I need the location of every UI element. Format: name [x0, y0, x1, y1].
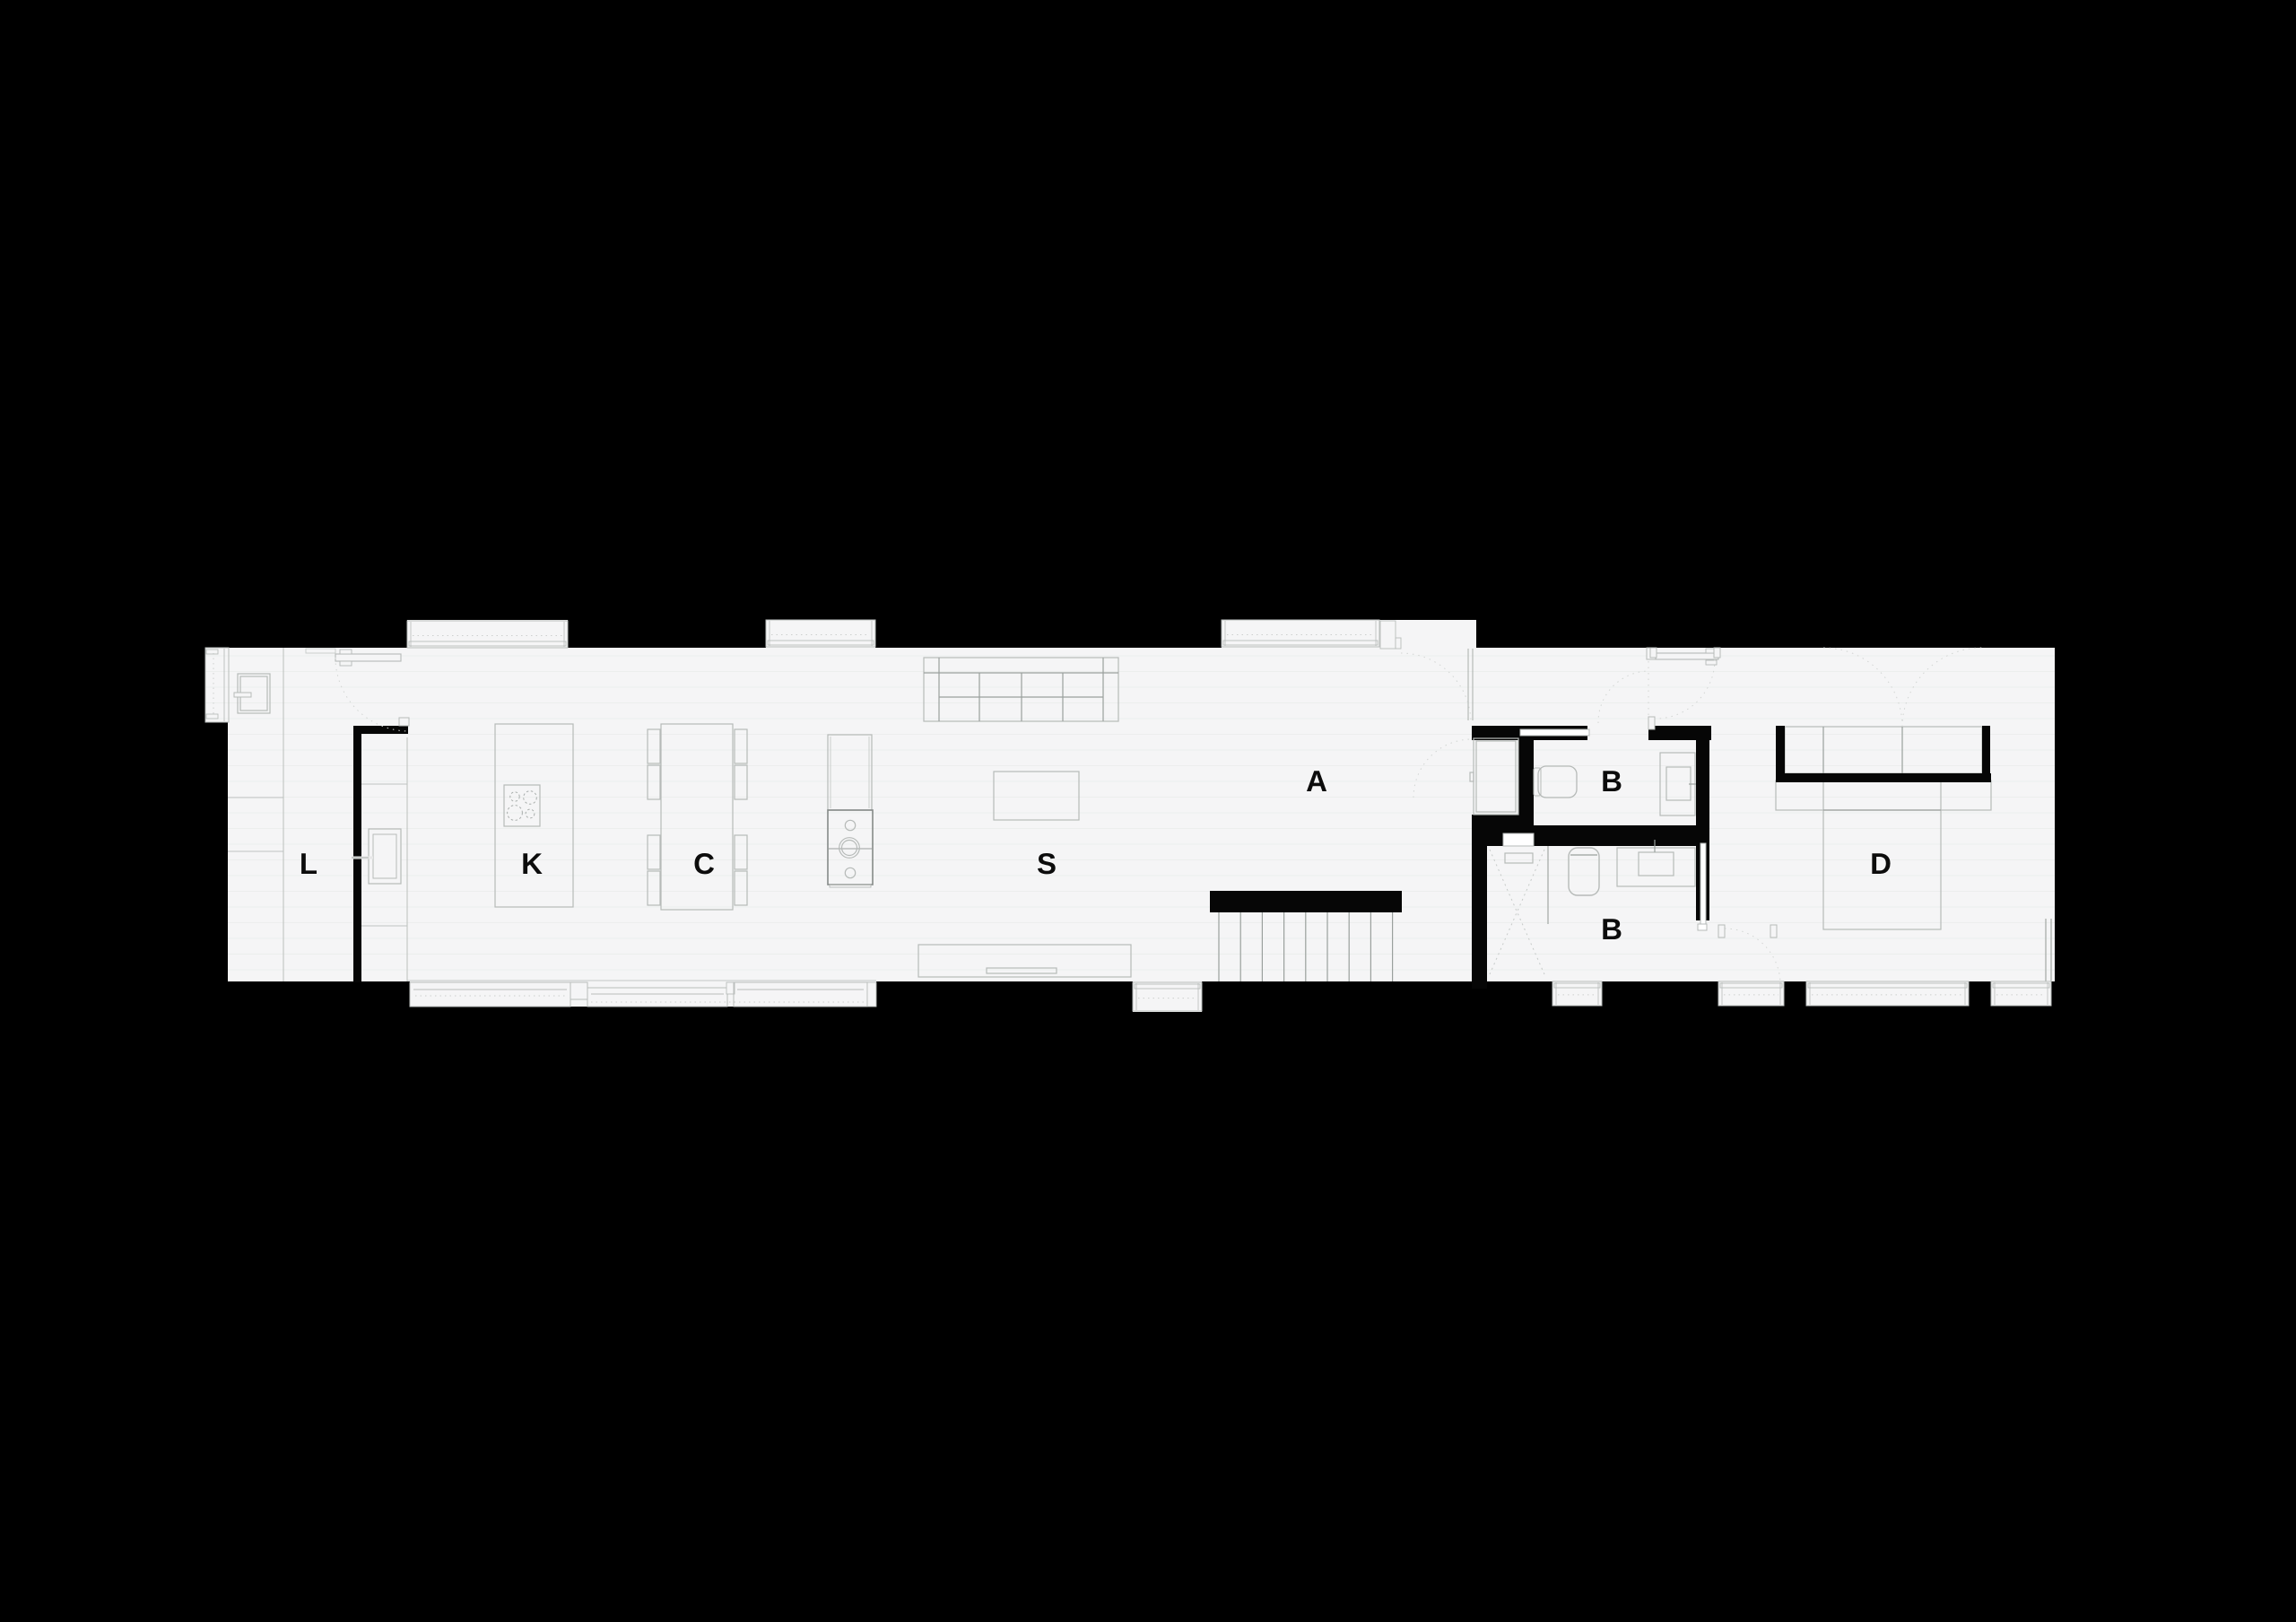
- svg-text:S: S: [1037, 847, 1057, 880]
- svg-text:K: K: [521, 847, 543, 880]
- svg-text:C: C: [693, 847, 715, 880]
- svg-text:L: L: [300, 847, 317, 880]
- svg-text:A: A: [1306, 764, 1327, 798]
- svg-text:D: D: [1870, 847, 1892, 880]
- svg-text:B: B: [1601, 764, 1622, 798]
- svg-text:B: B: [1601, 912, 1622, 946]
